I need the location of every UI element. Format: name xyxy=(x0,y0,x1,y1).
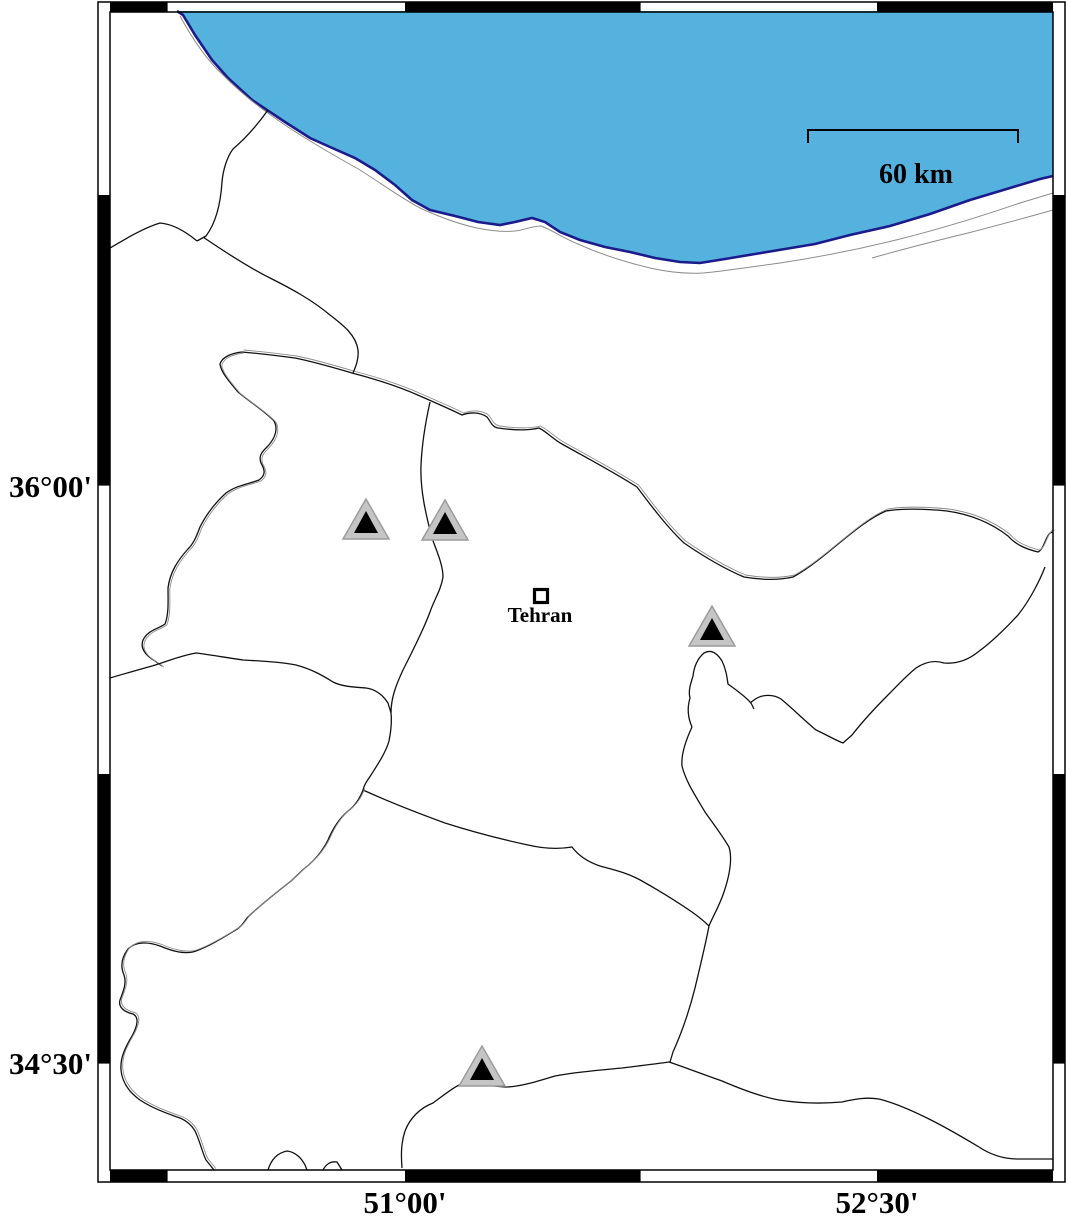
border-south-corridor xyxy=(670,727,731,1062)
latitude-label: 36°00' xyxy=(9,469,92,504)
border-feeder-east xyxy=(363,790,709,926)
latitude-label: 34°30' xyxy=(9,1046,92,1081)
border-coast-branch xyxy=(197,110,268,241)
frame-seg xyxy=(98,195,110,485)
frame-seg xyxy=(110,2,167,12)
border-east-vee xyxy=(750,567,1045,743)
frame-seg xyxy=(98,774,110,1063)
border-lines xyxy=(110,110,1055,1170)
map-canvas: 36°00'34°30'51°00'52°30' 60 km Tehran xyxy=(0,0,1066,1219)
scale-bar-label: 60 km xyxy=(879,159,953,190)
frame-seg xyxy=(405,1170,640,1182)
station-marker xyxy=(459,1046,505,1086)
station-marker xyxy=(343,499,389,539)
frame-seg xyxy=(1053,774,1065,1063)
border-dome xyxy=(688,651,754,727)
coordinate-labels: 36°00'34°30'51°00'52°30' xyxy=(9,469,919,1219)
border-left-edge-ew xyxy=(110,653,391,713)
frame-seg xyxy=(877,2,1053,12)
city-marker-group: Tehran xyxy=(508,590,573,628)
border-ns-middle xyxy=(363,402,443,790)
city-label: Tehran xyxy=(508,603,573,627)
border-ne-diagonal xyxy=(203,237,358,373)
city-square-marker xyxy=(535,590,548,603)
frame-seg xyxy=(1053,195,1065,485)
frame-seg xyxy=(877,1170,1053,1182)
border-main-ew-shadow xyxy=(244,350,1055,577)
border-main-ew xyxy=(242,352,1053,579)
doubled-border-group xyxy=(120,352,1053,1170)
station-markers xyxy=(343,499,735,1086)
border-sw-wiggle-shadow xyxy=(121,789,364,1169)
longitude-label: 51°00' xyxy=(363,1185,446,1219)
frame-seg xyxy=(110,1170,167,1182)
border-west-hook xyxy=(142,352,276,666)
station-marker xyxy=(422,500,468,540)
border-west-peak xyxy=(110,223,197,248)
border-southwest-wiggle xyxy=(120,790,363,1170)
longitude-label: 52°30' xyxy=(835,1185,918,1219)
frame-seg xyxy=(405,2,640,12)
station-marker xyxy=(689,606,735,646)
map-page: 36°00'34°30'51°00'52°30' 60 km Tehran xyxy=(0,0,1066,1219)
border-bottom-bumps xyxy=(268,1151,342,1170)
water-layer xyxy=(177,11,1053,263)
